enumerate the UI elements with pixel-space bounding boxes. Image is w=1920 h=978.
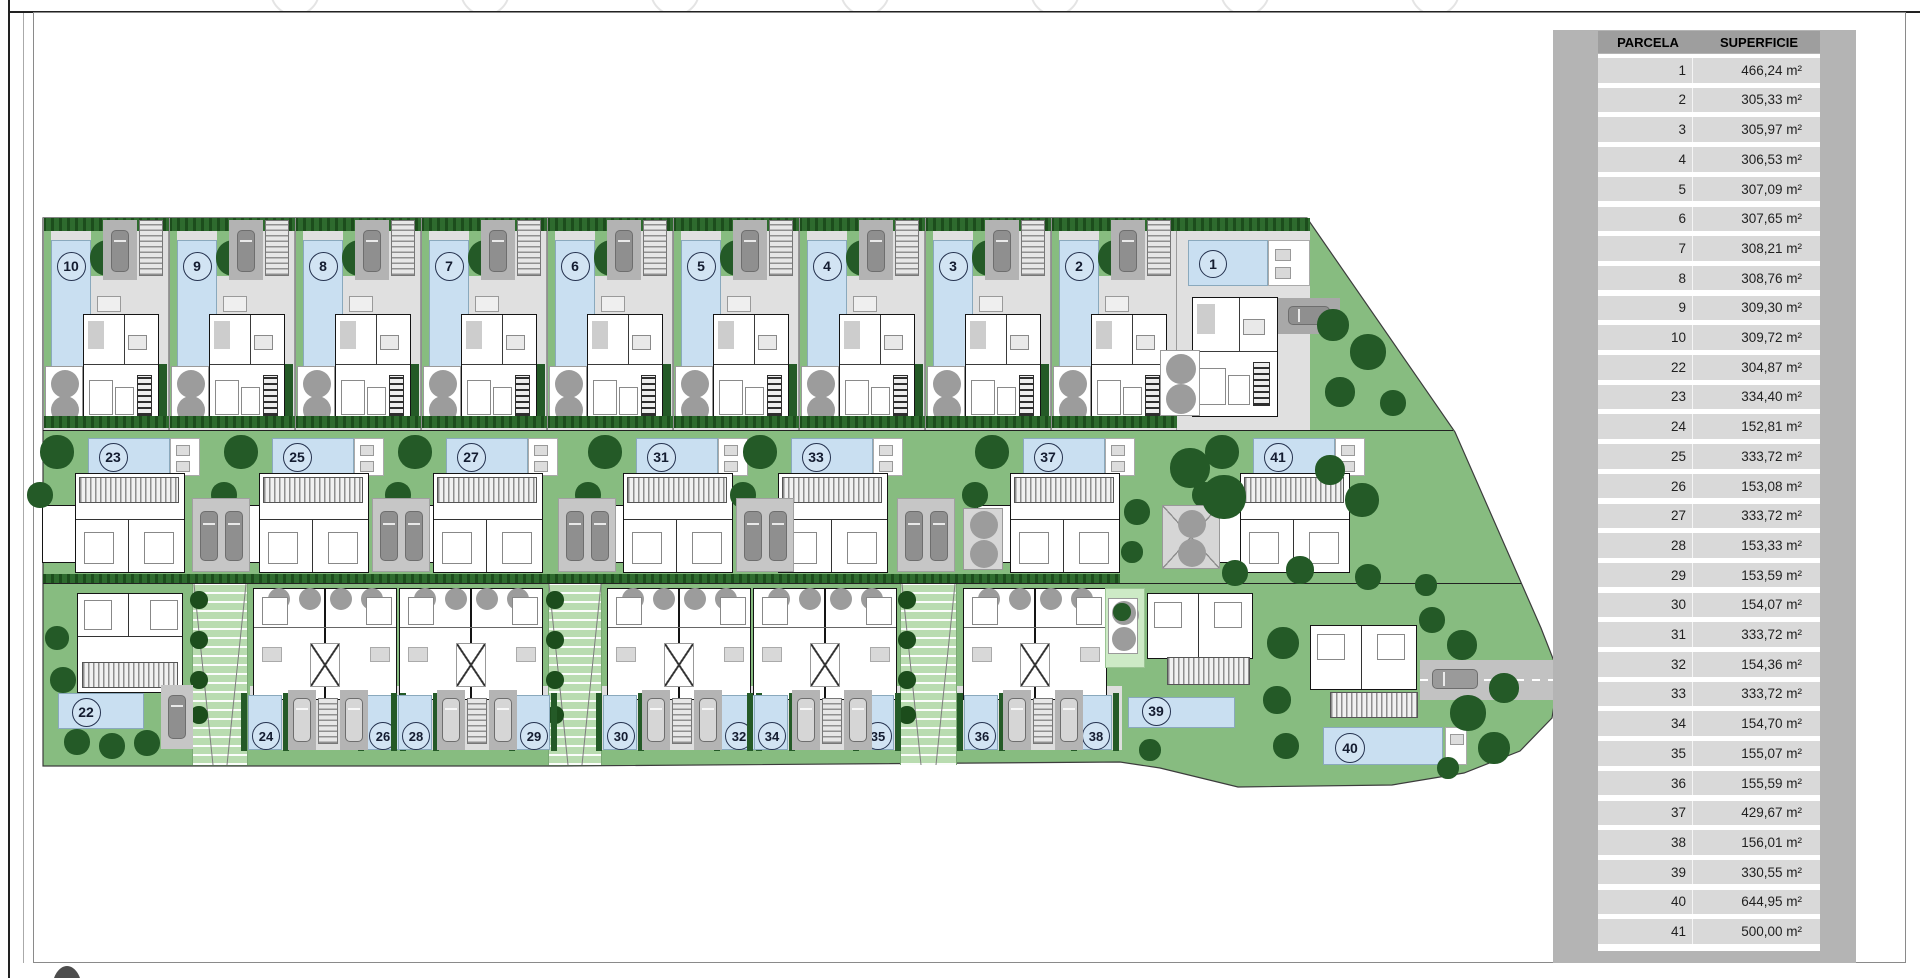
plot-separator — [799, 218, 800, 430]
car-icon — [237, 230, 255, 272]
parcel-table-panel: PARCELASUPERFICIE1466,24 m²2305,33 m²330… — [1553, 30, 1856, 963]
hedge-strip — [596, 693, 602, 751]
hedge-strip — [551, 693, 557, 751]
cell-parcela: 38 — [1598, 830, 1692, 855]
bed — [512, 597, 538, 625]
sofa — [340, 321, 356, 349]
parcel-number-label: 33 — [802, 443, 831, 472]
parcel-number-label: 37 — [1034, 443, 1063, 472]
terrace-table — [853, 296, 877, 312]
wall-line — [78, 636, 182, 637]
parcel-number-label: 4 — [813, 252, 842, 281]
plot-separator — [547, 218, 548, 430]
cell-parcela: 3 — [1598, 117, 1692, 142]
plot-separator — [925, 218, 926, 430]
bed — [144, 532, 174, 564]
bed — [408, 597, 434, 625]
bed — [745, 387, 765, 415]
car-windshield — [933, 523, 945, 525]
car-windshield — [366, 240, 378, 242]
hedge-top — [1177, 218, 1310, 231]
car-icon — [494, 698, 512, 742]
house-plan — [839, 314, 915, 426]
cell-parcela: 6 — [1598, 207, 1692, 232]
pool-deck — [1105, 438, 1135, 476]
wall-line — [376, 315, 377, 364]
cell-superficie: 500,00 m² — [1692, 919, 1814, 944]
tree-icon — [1286, 556, 1314, 584]
parking-spot — [437, 690, 465, 750]
parcel-5: 5 — [673, 218, 799, 430]
tree-icon — [743, 435, 777, 469]
parcel-number-label: 39 — [1142, 697, 1171, 726]
wall-line — [210, 364, 284, 365]
table-row: 38156,01 m² — [1598, 830, 1820, 855]
hedge-bottom — [673, 416, 799, 428]
car-windshield — [240, 240, 252, 242]
car-icon — [741, 230, 759, 272]
cell-parcela: 33 — [1598, 682, 1692, 707]
house-plan — [1192, 297, 1278, 417]
cell-superficie: 307,09 m² — [1692, 177, 1814, 202]
sofa — [718, 321, 734, 349]
tree-icon — [898, 671, 916, 689]
house-plan — [83, 314, 159, 426]
furniture — [408, 647, 428, 662]
tree-icon — [1345, 483, 1379, 517]
garage — [859, 220, 893, 280]
house-plan — [461, 314, 537, 426]
bed — [502, 532, 532, 564]
cell-parcela: 35 — [1598, 741, 1692, 766]
tree-icon — [1437, 757, 1459, 779]
parking-spot — [288, 690, 316, 750]
pool-deck — [873, 438, 903, 476]
parcel-number-label: 5 — [687, 252, 716, 281]
bed — [215, 380, 239, 415]
car-icon — [405, 511, 423, 561]
tree-icon — [1113, 603, 1131, 621]
table-row: 1466,24 m² — [1598, 58, 1820, 83]
parking-spot — [642, 690, 670, 750]
cell-superficie: 466,24 m² — [1692, 58, 1814, 83]
stair-void — [810, 643, 840, 687]
cell-superficie: 333,72 m² — [1692, 682, 1814, 707]
gray-tree-icon — [1059, 370, 1087, 398]
parcel-number-label: 8 — [309, 252, 338, 281]
garage — [481, 220, 515, 280]
path-line — [936, 584, 956, 765]
dining-table — [632, 335, 652, 350]
garage — [229, 220, 263, 280]
bed — [593, 380, 617, 415]
wall-line — [1361, 626, 1362, 689]
tree-icon — [224, 435, 258, 469]
furniture — [262, 647, 282, 662]
car-windshield — [1298, 309, 1300, 322]
parcel-number-label: 29 — [520, 722, 548, 750]
tree-icon — [1489, 673, 1519, 703]
band-boundary-line — [43, 430, 1453, 431]
driveway — [897, 498, 955, 572]
car-icon — [930, 511, 948, 561]
wall-line — [880, 315, 881, 364]
tree-icon — [962, 482, 988, 508]
house-plan — [1091, 314, 1167, 426]
walkway — [900, 584, 957, 765]
furniture — [762, 647, 782, 662]
dining-table — [758, 335, 778, 350]
parcel-number-label: 28 — [402, 722, 430, 750]
car-windshield — [408, 523, 420, 525]
table-row: 24152,81 m² — [1598, 414, 1820, 439]
car-windshield — [1443, 672, 1445, 686]
car-windshield — [1122, 240, 1134, 242]
gray-tree-icon — [1112, 627, 1136, 651]
bed — [971, 380, 995, 415]
wall-line — [1006, 315, 1007, 364]
tree-icon — [1325, 377, 1355, 407]
car-windshield — [996, 240, 1008, 242]
parcel-number-label: 31 — [647, 443, 676, 472]
cell-superficie: 154,36 m² — [1692, 652, 1814, 677]
wall-line — [1011, 519, 1119, 520]
parking-spot — [1055, 690, 1083, 750]
table-row: 37429,67 m² — [1598, 801, 1820, 826]
bed — [845, 380, 869, 415]
cell-superficie: 156,01 m² — [1692, 830, 1814, 855]
cell-superficie: 305,33 m² — [1692, 88, 1814, 113]
tree-icon — [546, 591, 564, 609]
car-icon — [797, 698, 815, 742]
parcel-number-label: 27 — [457, 443, 486, 472]
cell-superficie: 330,55 m² — [1692, 860, 1814, 885]
hedge-bottom — [421, 416, 547, 428]
terrace-table — [979, 296, 1003, 312]
parcel-number-label: 1 — [1199, 250, 1227, 278]
tree-icon — [1380, 390, 1406, 416]
townhouse-block — [607, 588, 751, 700]
wall-line — [434, 519, 542, 520]
parking-spot — [340, 690, 368, 750]
townhouse-block — [253, 588, 397, 700]
stair-void — [456, 643, 486, 687]
terrace-table — [475, 296, 499, 312]
gray-tree-icon — [1040, 588, 1062, 610]
garage — [103, 220, 137, 280]
garden-pool — [58, 693, 144, 729]
car-icon — [744, 511, 762, 561]
bed — [84, 532, 114, 564]
hedge-bottom — [1051, 416, 1177, 428]
parcel-number-label: 10 — [57, 252, 86, 281]
car-windshield — [569, 523, 581, 525]
pool-terrace — [1268, 240, 1310, 286]
bed — [1199, 368, 1226, 405]
roof-deck — [1014, 477, 1114, 503]
utility-block — [1019, 375, 1034, 416]
table-row: 5307,09 m² — [1598, 177, 1820, 202]
cell-superficie: 308,76 m² — [1692, 266, 1814, 291]
tree-icon — [50, 667, 76, 693]
gray-tree-icon — [970, 540, 998, 568]
house-plan — [77, 593, 183, 693]
bed — [847, 532, 877, 564]
wall-line — [964, 627, 1106, 628]
terrace-table — [727, 296, 751, 312]
driveway — [161, 685, 193, 749]
shrub-strip — [159, 364, 167, 424]
site-plan-drawing: 1098765432123252731333741242628293032343… — [0, 0, 1560, 978]
gray-tree-icon — [1178, 539, 1206, 567]
deck-table — [360, 461, 374, 472]
cell-parcela: 28 — [1598, 533, 1692, 558]
stairs — [391, 220, 415, 276]
utility-block — [1253, 362, 1270, 406]
utility-block — [641, 375, 656, 416]
wall-line — [1193, 351, 1277, 352]
house-plan — [1147, 593, 1253, 659]
car-icon — [293, 698, 311, 742]
dining-table — [128, 335, 148, 350]
car-icon — [1008, 698, 1026, 742]
cell-superficie: 153,33 m² — [1692, 533, 1814, 558]
parking-spot — [844, 690, 872, 750]
tree-icon — [1121, 541, 1143, 563]
bed — [150, 600, 178, 630]
gray-tree-icon — [830, 588, 852, 610]
sofa — [88, 321, 104, 349]
gray-tree-icon — [681, 370, 709, 398]
table-row: 9309,30 m² — [1598, 296, 1820, 321]
parking-spot — [792, 690, 820, 750]
parcel-number-label: 9 — [183, 252, 212, 281]
car-icon — [566, 511, 584, 561]
cell-superficie: 308,21 m² — [1692, 236, 1814, 261]
bed — [632, 532, 662, 564]
cell-parcela: 2 — [1598, 88, 1692, 113]
hedge-strip — [241, 693, 247, 751]
tree-icon — [27, 482, 53, 508]
tree-icon — [1315, 455, 1345, 485]
courtyard-patio — [963, 508, 1003, 570]
cell-superficie: 153,08 m² — [1692, 474, 1814, 499]
car-windshield — [203, 523, 215, 525]
wall-line — [1092, 364, 1166, 365]
cell-superficie: 154,07 m² — [1692, 593, 1814, 618]
stairs — [139, 220, 163, 276]
terrace-table — [1450, 734, 1464, 745]
parcel-number-label: 23 — [99, 443, 128, 472]
car-icon — [442, 698, 460, 742]
car-icon — [489, 230, 507, 272]
driveway — [192, 498, 250, 572]
tree-icon — [975, 435, 1009, 469]
terrace-table — [223, 296, 247, 312]
furniture — [616, 647, 636, 662]
gray-tree-icon — [476, 588, 498, 610]
house-plan — [433, 473, 543, 573]
parking-spot — [489, 690, 517, 750]
car-windshield — [650, 708, 662, 710]
bed — [719, 380, 743, 415]
townhouse-block — [399, 588, 543, 700]
bed — [1019, 532, 1049, 564]
car-icon — [647, 698, 665, 742]
roof-deck — [782, 477, 882, 503]
car-windshield — [747, 523, 759, 525]
table-row: 27333,72 m² — [1598, 504, 1820, 529]
car-icon — [380, 511, 398, 561]
tree-icon — [1447, 630, 1477, 660]
shrub-strip — [285, 364, 293, 424]
hedge-strip — [747, 693, 753, 751]
sofa — [1197, 304, 1215, 334]
cell-parcela: 23 — [1598, 385, 1692, 410]
parcel-6: 6 — [547, 218, 673, 430]
house-plan — [623, 473, 733, 573]
parcel-23: 23 — [22, 432, 214, 583]
dining-table — [1010, 335, 1030, 350]
wall-line — [1241, 519, 1349, 520]
parcel-9: 9 — [169, 218, 295, 430]
house-plan — [75, 473, 185, 573]
table-row: 10309,72 m² — [1598, 325, 1820, 350]
hedge-strip — [391, 693, 397, 751]
cell-parcela: 26 — [1598, 474, 1692, 499]
bed — [442, 532, 472, 564]
wall-line — [400, 627, 542, 628]
car-windshield — [870, 240, 882, 242]
wall-line — [840, 364, 914, 365]
stairs — [895, 220, 919, 276]
bed — [1249, 532, 1279, 564]
tree-icon — [1273, 733, 1299, 759]
bed — [866, 597, 892, 625]
hedge-strip — [957, 693, 963, 751]
furniture — [724, 647, 744, 662]
bed — [720, 597, 746, 625]
hedge-bottom — [799, 416, 925, 428]
cell-parcela: 37 — [1598, 801, 1692, 826]
tree-icon — [398, 435, 432, 469]
garage — [1111, 220, 1145, 280]
stairs — [769, 220, 793, 276]
cell-superficie: 309,30 m² — [1692, 296, 1814, 321]
hedge-bottom — [925, 416, 1051, 428]
table-row: 3305,97 m² — [1598, 117, 1820, 142]
utility-block — [767, 375, 782, 416]
tree-icon — [99, 733, 125, 759]
wall-line — [124, 315, 125, 364]
plot-separator — [673, 218, 674, 430]
stairs — [643, 220, 667, 276]
sofa — [1096, 321, 1112, 349]
plot-separator — [1051, 218, 1052, 430]
cell-superficie: 154,70 m² — [1692, 711, 1814, 736]
tree-icon — [40, 435, 74, 469]
table-row: 35155,07 m² — [1598, 741, 1820, 766]
car-icon — [905, 511, 923, 561]
wall-line — [714, 364, 788, 365]
table-row: 29153,59 m² — [1598, 563, 1820, 588]
house-plan — [778, 473, 888, 573]
gray-tree-icon — [1166, 354, 1196, 384]
car-icon — [867, 230, 885, 272]
bed — [1097, 380, 1121, 415]
car-windshield — [1063, 708, 1075, 710]
table-row: 22304,87 m² — [1598, 355, 1820, 380]
car-icon — [363, 230, 381, 272]
car-icon — [345, 698, 363, 742]
bed — [341, 380, 365, 415]
parcel-number-label: 40 — [1335, 733, 1365, 763]
driveway — [736, 498, 794, 572]
car-windshield — [492, 240, 504, 242]
car-icon — [849, 698, 867, 742]
pool-deck — [170, 438, 200, 476]
cell-parcela: 30 — [1598, 593, 1692, 618]
house-plan — [209, 314, 285, 426]
tree-icon — [1415, 574, 1437, 596]
deck-table — [360, 445, 374, 456]
parcel-number-label: 41 — [1264, 443, 1293, 472]
cell-superficie: 305,97 m² — [1692, 117, 1814, 142]
car-icon — [699, 698, 717, 742]
bed — [692, 532, 722, 564]
wall-line — [676, 519, 677, 572]
table-header-parcela: PARCELA — [1598, 31, 1698, 53]
parcel-number-label: 2 — [1065, 252, 1094, 281]
hedge-bottom — [169, 416, 295, 428]
bed — [1076, 597, 1102, 625]
patio — [1160, 350, 1200, 416]
bed — [1079, 532, 1109, 564]
furniture — [370, 647, 390, 662]
table-row: 31333,72 m² — [1598, 622, 1820, 647]
bed — [89, 380, 113, 415]
gray-tree-icon — [933, 370, 961, 398]
bed — [1309, 532, 1339, 564]
cell-parcela: 27 — [1598, 504, 1692, 529]
furniture — [870, 647, 890, 662]
cell-parcela: 8 — [1598, 266, 1692, 291]
stairs — [517, 220, 541, 276]
bed — [1377, 634, 1405, 660]
gray-tree-icon — [799, 588, 821, 610]
tree-icon — [1202, 475, 1246, 519]
cell-superficie: 644,95 m² — [1692, 890, 1814, 915]
tree-icon — [588, 435, 622, 469]
cell-parcela: 9 — [1598, 296, 1692, 321]
parcel-7: 7 — [421, 218, 547, 430]
cell-parcela: 39 — [1598, 860, 1692, 885]
wall-line — [1239, 298, 1240, 351]
bed — [493, 387, 513, 415]
bed — [762, 597, 788, 625]
gray-tree-icon — [653, 588, 675, 610]
stair-void — [1020, 643, 1050, 687]
parcel-number-label: 22 — [72, 698, 101, 727]
table-row: 41500,00 m² — [1598, 919, 1820, 944]
cell-superficie: 333,72 m² — [1692, 622, 1814, 647]
gray-tree-icon — [51, 370, 79, 398]
car-windshield — [908, 523, 920, 525]
terrace-table — [1105, 296, 1129, 312]
stairs — [822, 698, 842, 744]
parking-spot — [1003, 690, 1031, 750]
tree-icon — [546, 671, 564, 689]
